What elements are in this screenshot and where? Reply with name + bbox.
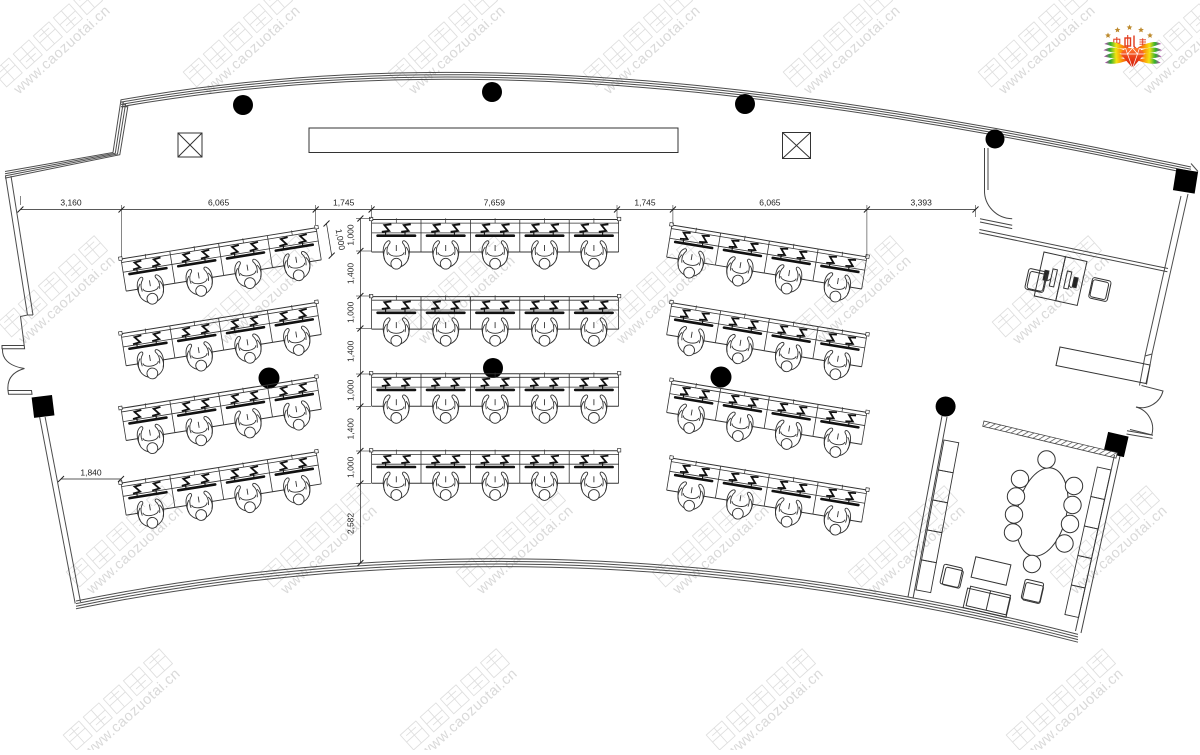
svg-text:1,400: 1,400: [346, 340, 356, 362]
svg-text:1,000: 1,000: [346, 456, 356, 478]
svg-text:1,745: 1,745: [333, 198, 355, 208]
svg-text:7,659: 7,659: [484, 198, 506, 208]
svg-text:3,160: 3,160: [60, 198, 82, 208]
svg-text:1,000: 1,000: [346, 379, 356, 401]
svg-text:6,065: 6,065: [759, 198, 781, 208]
svg-text:1,400: 1,400: [346, 263, 356, 285]
svg-text:6,065: 6,065: [208, 198, 230, 208]
svg-text:3,393: 3,393: [911, 198, 933, 208]
svg-text:1,840: 1,840: [80, 468, 102, 478]
svg-text:1,000: 1,000: [346, 301, 356, 323]
svg-text:1,400: 1,400: [346, 418, 356, 440]
svg-text:1,745: 1,745: [634, 198, 656, 208]
svg-text:2,582: 2,582: [346, 513, 356, 535]
